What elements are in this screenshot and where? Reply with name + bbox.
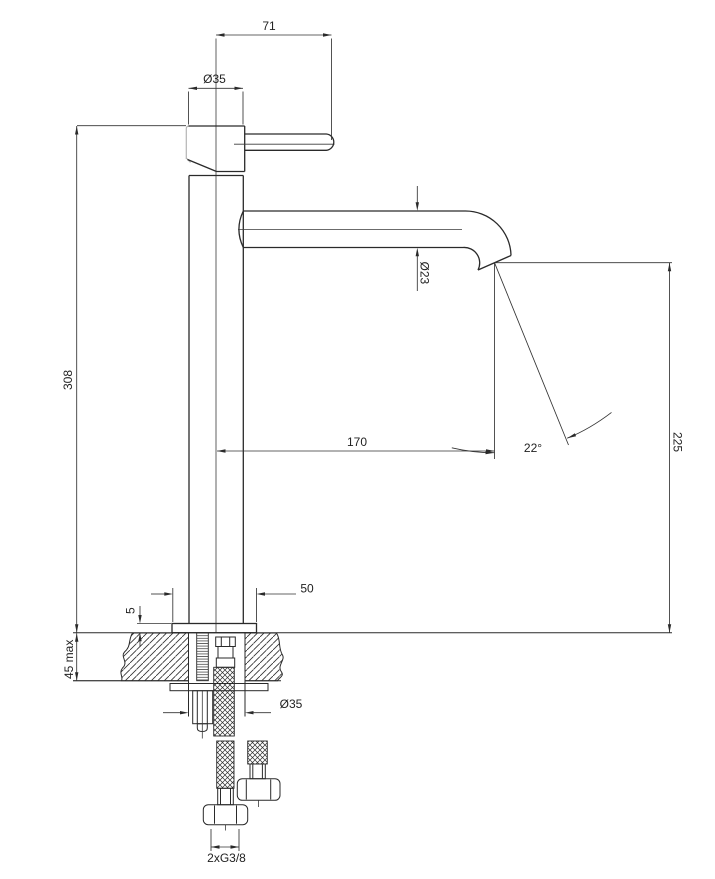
dim-text-head-diameter: Ø35 [203,72,226,86]
supply-hose-upper [214,667,235,736]
hose-center-braid [217,741,234,788]
dim-text-connection-thread: 2xG3/8 [207,851,246,865]
dim-text-base-thickness: 5 [124,607,138,614]
dim-text-counter-thickness: 45 max [62,640,76,679]
dim-text-spout-diameter: Ø23 [418,262,432,285]
hose-right-braid [248,741,268,764]
counter-slab-left [121,633,189,681]
technical-drawing-page: 71 Ø35 Ø23 308 45 max [0,0,715,879]
dim-text-shank-diameter: Ø35 [280,697,303,711]
dim-text-total-height: 308 [61,370,75,390]
dim-text-spout-angle: 22° [524,441,542,455]
dim-text-base-diameter: 50 [300,582,314,596]
dim-text-handle-length: 71 [262,19,276,33]
mounting-stud-threaded [197,633,209,681]
faucet-dimensional-drawing: 71 Ø35 Ø23 308 45 max [0,0,715,879]
counter-slab-right [245,633,283,681]
dim-text-spout-reach: 170 [347,435,367,449]
dim-text-outlet-height: 225 [671,432,685,452]
